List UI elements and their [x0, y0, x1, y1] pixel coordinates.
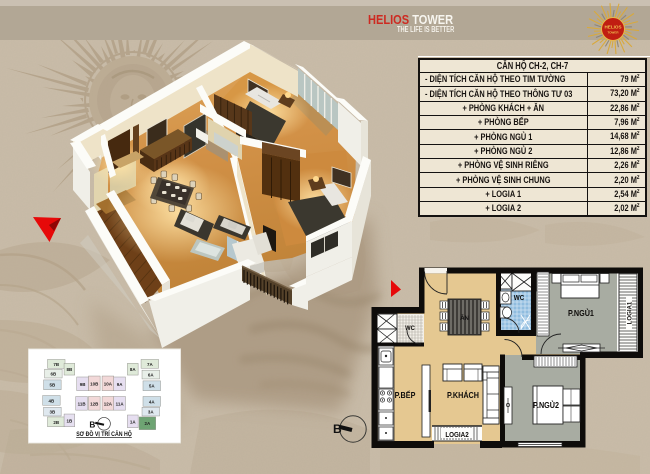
svg-text:P.NGỦ2: P.NGỦ2	[533, 400, 559, 410]
svg-text:P.KHÁCH: P.KHÁCH	[447, 390, 479, 400]
svg-text:12B: 12B	[90, 401, 99, 406]
svg-text:7A: 7A	[147, 362, 153, 367]
svg-text:4A: 4A	[149, 399, 155, 404]
svg-text:7B: 7B	[53, 362, 59, 367]
svg-text:1A: 1A	[130, 419, 136, 424]
svg-text:5B: 5B	[50, 383, 56, 388]
svg-text:9B: 9B	[80, 382, 86, 387]
svg-text:8A: 8A	[130, 367, 136, 372]
svg-text:5A: 5A	[149, 384, 155, 389]
svg-text:11B: 11B	[78, 401, 87, 406]
svg-text:2B: 2B	[53, 420, 59, 425]
svg-text:3A: 3A	[148, 410, 154, 415]
svg-text:2A: 2A	[145, 421, 151, 426]
svg-text:P.BẾP: P.BẾP	[395, 389, 416, 400]
svg-text:6B: 6B	[50, 372, 56, 377]
svg-text:TOWER: TOWER	[607, 31, 619, 35]
svg-text:SƠ ĐỒ VỊ TRÍ CĂN HỘ: SƠ ĐỒ VỊ TRÍ CĂN HỘ	[76, 429, 132, 438]
svg-text:P.NGỦ1: P.NGỦ1	[568, 308, 594, 318]
svg-text:9A: 9A	[117, 382, 123, 387]
svg-text:11A: 11A	[116, 401, 125, 406]
svg-text:10B: 10B	[90, 381, 99, 386]
svg-text:LOGIA2: LOGIA2	[445, 432, 469, 439]
svg-text:12A: 12A	[104, 401, 113, 406]
svg-text:10A: 10A	[104, 381, 113, 386]
svg-text:LOGIA1: LOGIA1	[626, 301, 633, 324]
svg-text:8B: 8B	[67, 367, 73, 372]
svg-text:HELIOS: HELIOS	[604, 25, 621, 30]
svg-text:3B: 3B	[50, 410, 56, 415]
svg-text:B: B	[89, 421, 95, 430]
svg-text:1B: 1B	[67, 418, 73, 423]
svg-text:ĂN: ĂN	[460, 313, 469, 322]
svg-text:4B: 4B	[49, 398, 55, 403]
svg-text:WC: WC	[514, 295, 525, 302]
svg-text:6A: 6A	[148, 373, 154, 378]
